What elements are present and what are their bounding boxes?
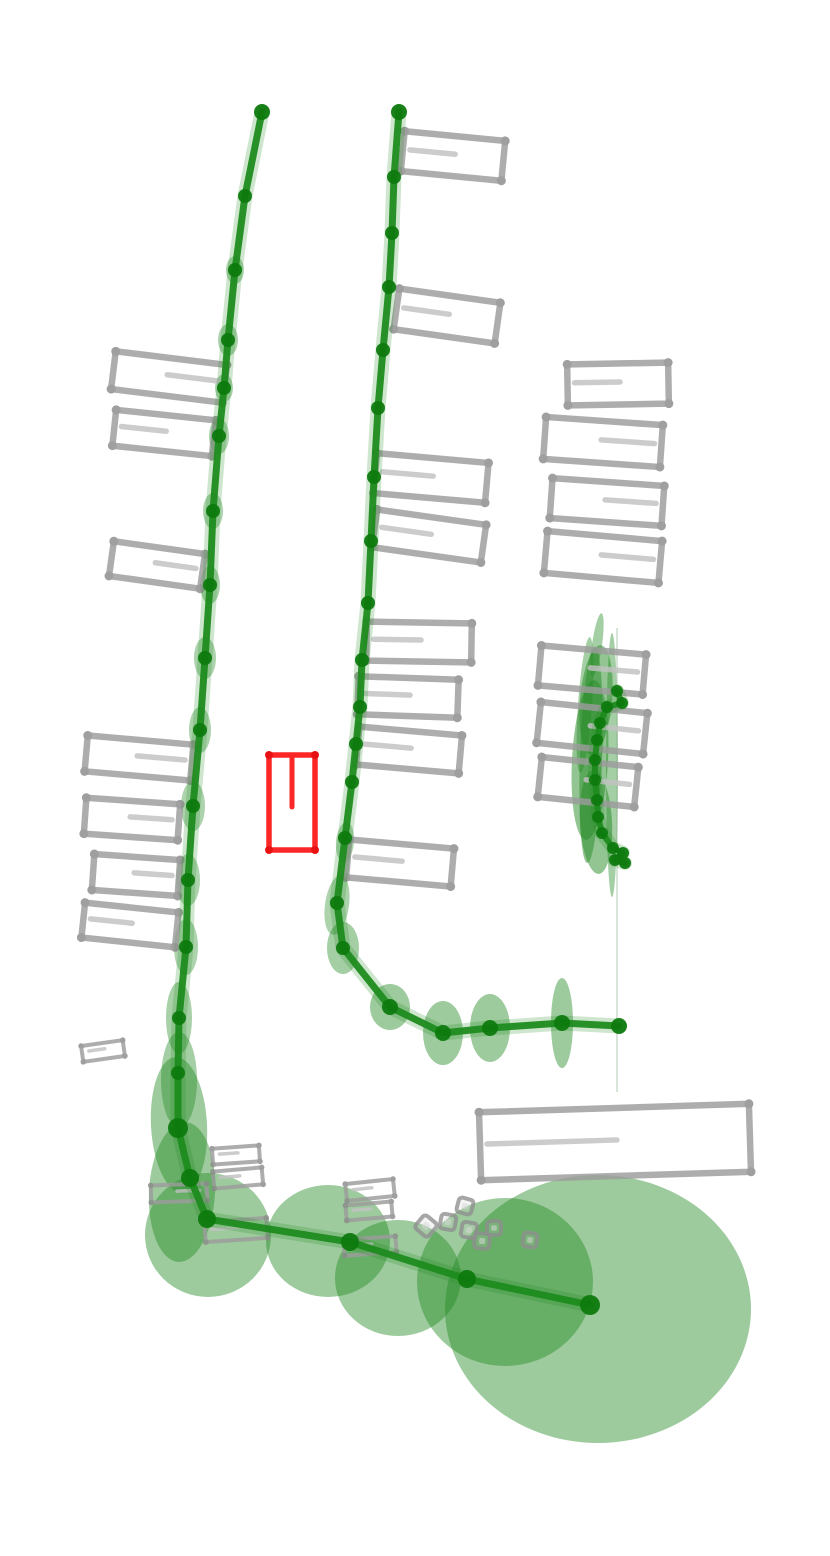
waypoint-dot: [435, 1025, 451, 1041]
vehicle-heading-line: [89, 1049, 105, 1051]
vehicle-heading-line: [574, 382, 619, 383]
vehicle-heading-line: [134, 873, 172, 876]
waypoint-dot: [353, 700, 367, 714]
vehicle-heading-line: [155, 563, 196, 569]
vehicle: [545, 473, 669, 530]
waypoint-dot: [193, 723, 207, 737]
vehicle-heading-line: [410, 150, 455, 154]
pedestrian-mark: [527, 1237, 533, 1243]
vehicle: [362, 617, 477, 667]
vehicle: [353, 672, 464, 723]
waypoint-dot: [181, 873, 195, 887]
vehicle-heading-line: [219, 1153, 237, 1154]
waypoint-dot: [221, 333, 235, 347]
vehicle: [79, 793, 185, 845]
vehicle: [396, 126, 510, 185]
pedestrian-mark: [445, 1219, 452, 1226]
waypoint-dot: [349, 737, 363, 751]
waypoint-dot: [171, 1066, 185, 1080]
waypoint-dot: [203, 578, 217, 592]
vehicle-heading-line: [601, 440, 654, 444]
pedestrian-mark: [479, 1238, 486, 1245]
waypoint-dot: [217, 381, 231, 395]
waypoint-dot: [341, 1233, 359, 1251]
vehicle-heading-line: [353, 1188, 372, 1190]
vehicle-heading-line: [355, 857, 402, 861]
vehicle: [107, 405, 220, 461]
waypoint-dot: [596, 827, 608, 839]
vehicle-heading-line: [605, 500, 656, 504]
vehicle-heading-line: [220, 1176, 239, 1178]
waypoint-dot: [611, 1018, 627, 1034]
vehicle-heading-line: [487, 1140, 617, 1144]
waypoint-dot: [589, 754, 601, 766]
vehicle-heading-line: [167, 375, 218, 381]
vehicle: [104, 536, 210, 594]
vehicle: [533, 641, 651, 700]
waypoint-dot: [338, 831, 352, 845]
waypoint-dot: [594, 717, 606, 729]
ego-corner: [311, 846, 319, 854]
waypoint-dot: [382, 999, 398, 1015]
vehicle-heading-line: [365, 694, 410, 696]
waypoint-dot: [179, 940, 193, 954]
waypoint-dot: [376, 343, 390, 357]
waypoint-dot: [361, 596, 375, 610]
waypoint-dot: [458, 1270, 476, 1288]
waypoint-dot: [181, 1169, 199, 1187]
vehicle: [351, 722, 467, 779]
vehicle-heading-line: [601, 555, 653, 560]
waypoint-dot: [212, 429, 226, 443]
waypoint-dot: [168, 1118, 188, 1138]
waypoint-dot: [592, 811, 604, 823]
trajectory-glow: [337, 112, 619, 1033]
vehicle-heading-line: [90, 919, 132, 923]
waypoint-dot: [387, 170, 401, 184]
vehicle-heading-line: [382, 472, 433, 476]
trajectory-scene: [0, 0, 830, 1556]
ego-vehicle-layer: [265, 751, 319, 854]
waypoint-dot: [580, 1295, 600, 1315]
pedestrian: [439, 1213, 456, 1230]
vehicle-heading-line: [121, 427, 166, 432]
vehicle: [474, 1099, 755, 1185]
vehicle-heading-line: [382, 527, 432, 534]
waypoint-dot: [345, 775, 359, 789]
vehicle-heading-line: [404, 308, 450, 314]
vehicle: [369, 448, 494, 507]
waypoint-dot: [198, 1210, 216, 1228]
waypoint-dot: [589, 774, 601, 786]
ego-vehicle: [265, 751, 319, 854]
waypoint-dot: [591, 734, 603, 746]
trajectory-line: [337, 112, 619, 1033]
waypoint-dot: [238, 189, 252, 203]
vehicle: [87, 849, 185, 901]
waypoint-dot: [601, 701, 613, 713]
vehicle: [389, 284, 506, 349]
vehicle: [539, 526, 667, 588]
waypoint-dot: [198, 651, 212, 665]
vehicle-heading-line: [374, 639, 421, 640]
vehicle-heading-line: [137, 756, 185, 760]
vehicle: [341, 835, 459, 892]
vehicle: [78, 1037, 128, 1065]
trajectory-plot: [0, 0, 830, 1556]
pedestrian: [487, 1221, 501, 1235]
vehicle: [106, 346, 232, 407]
waypoint-dot: [382, 280, 396, 294]
waypoint-dot: [206, 504, 220, 518]
waypoint-dot: [367, 470, 381, 484]
waypoint-dot: [336, 941, 350, 955]
waypoint-dot: [616, 697, 628, 709]
waypoint-dot: [355, 653, 369, 667]
pedestrian: [456, 1197, 474, 1215]
waypoint-dot: [228, 263, 242, 277]
ego-corner: [311, 751, 319, 759]
waypoint-dot: [385, 226, 399, 240]
vehicle-heading-line: [130, 817, 172, 820]
waypoint-dot: [186, 799, 200, 813]
waypoint-dot: [254, 104, 270, 120]
vehicle: [563, 358, 674, 410]
pedestrian: [522, 1232, 538, 1248]
waypoint-dot: [482, 1020, 498, 1036]
vehicle: [209, 1142, 263, 1167]
waypoint-dot: [330, 896, 344, 910]
pedestrian-mark: [491, 1225, 497, 1231]
vehicle: [80, 731, 198, 786]
ego-corner: [265, 846, 273, 854]
pedestrian-mark: [466, 1227, 473, 1234]
waypoint-dot: [371, 401, 385, 415]
vehicle-heading-line: [365, 744, 411, 748]
waypoint-dot: [391, 104, 407, 120]
waypoint-dot: [364, 534, 378, 548]
waypoint-dot: [619, 857, 631, 869]
trajectory: [330, 104, 627, 1041]
vehicle-heading-line: [353, 1209, 371, 1211]
waypoint-dot: [611, 685, 623, 697]
vehicle: [76, 898, 183, 953]
vehicle: [367, 504, 491, 567]
waypoint-dot: [591, 794, 603, 806]
ego-corner: [265, 751, 273, 759]
waypoint-dot: [172, 1011, 186, 1025]
vehicle: [538, 412, 667, 472]
waypoint-dot: [554, 1015, 570, 1031]
